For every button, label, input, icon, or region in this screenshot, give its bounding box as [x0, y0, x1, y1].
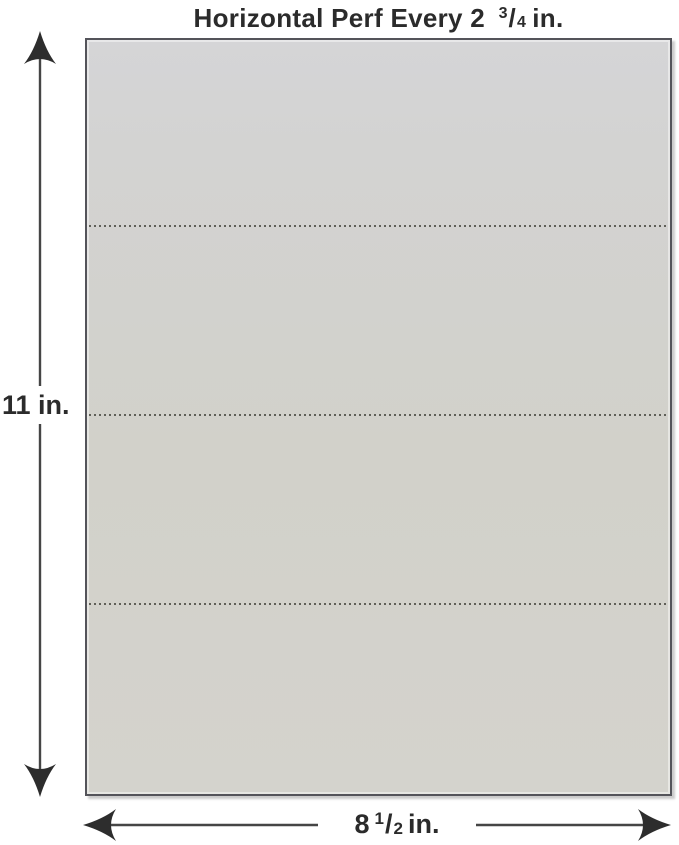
arrow-down-icon — [24, 764, 56, 797]
width-fraction-denominator: 2 — [394, 819, 403, 838]
width-dimension-label: 81/2in. — [318, 804, 476, 844]
height-dimension-label: 11 in. — [0, 386, 78, 424]
width-label-suffix: in. — [408, 809, 440, 840]
title-fraction-denominator: 4 — [517, 14, 526, 31]
perforation-line — [89, 603, 668, 605]
arrow-left-icon — [83, 809, 116, 841]
perforation-line — [89, 414, 668, 416]
page-title: Horizontal Perf Every 2 3/4in. — [85, 0, 672, 37]
title-prefix: Horizontal Perf Every 2 — [194, 3, 486, 34]
diagram-canvas: Horizontal Perf Every 2 3/4in. 11 in. 81… — [0, 0, 679, 845]
width-label-prefix: 8 — [355, 809, 370, 840]
width-fraction-numerator: 1 — [375, 809, 384, 828]
arrow-up-icon — [24, 31, 56, 64]
paper-sheet — [85, 38, 672, 796]
width-fraction-slash: / — [385, 809, 393, 839]
title-fraction-slash: / — [509, 3, 517, 33]
arrow-right-icon — [638, 809, 671, 841]
title-fraction-numerator: 3 — [499, 5, 508, 22]
title-suffix: in. — [532, 3, 563, 34]
perforation-line — [89, 225, 668, 227]
width-label-fraction: 1/2 — [375, 809, 403, 840]
title-fraction: 3/4 — [499, 3, 527, 34]
